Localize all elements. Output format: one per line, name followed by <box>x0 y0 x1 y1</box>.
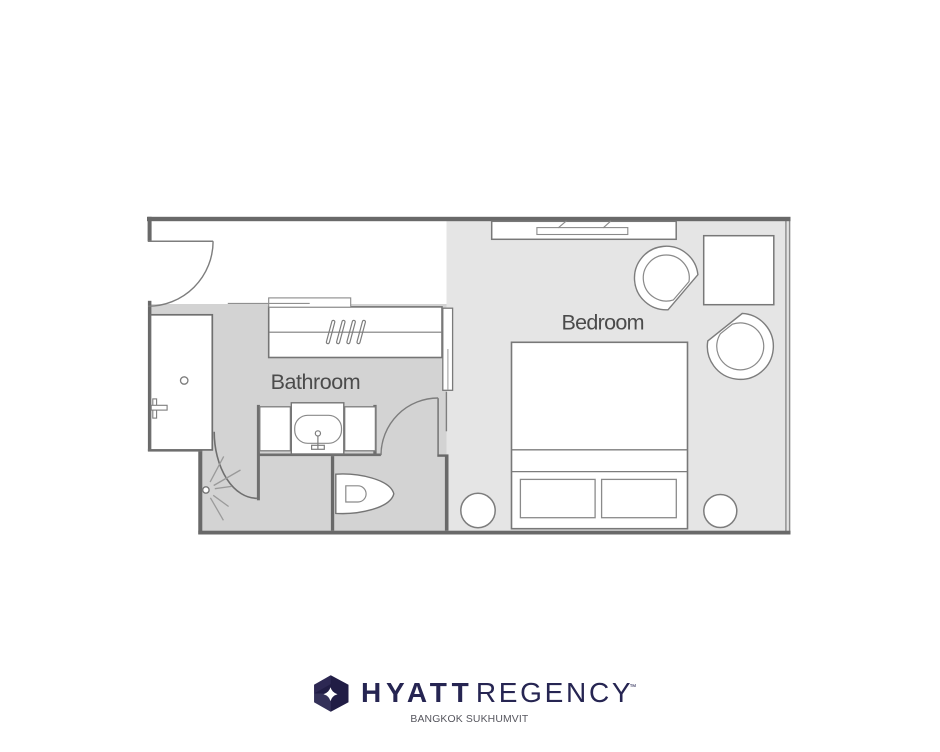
svg-text:Bedroom: Bedroom <box>562 311 644 335</box>
svg-text:™: ™ <box>629 684 636 691</box>
svg-text:BANGKOK SUKHUMVIT: BANGKOK SUKHUMVIT <box>410 714 529 725</box>
svg-text:HYATT: HYATT <box>361 677 473 708</box>
svg-text:Bathroom: Bathroom <box>271 370 361 394</box>
svg-text:REGENCY: REGENCY <box>476 677 633 708</box>
